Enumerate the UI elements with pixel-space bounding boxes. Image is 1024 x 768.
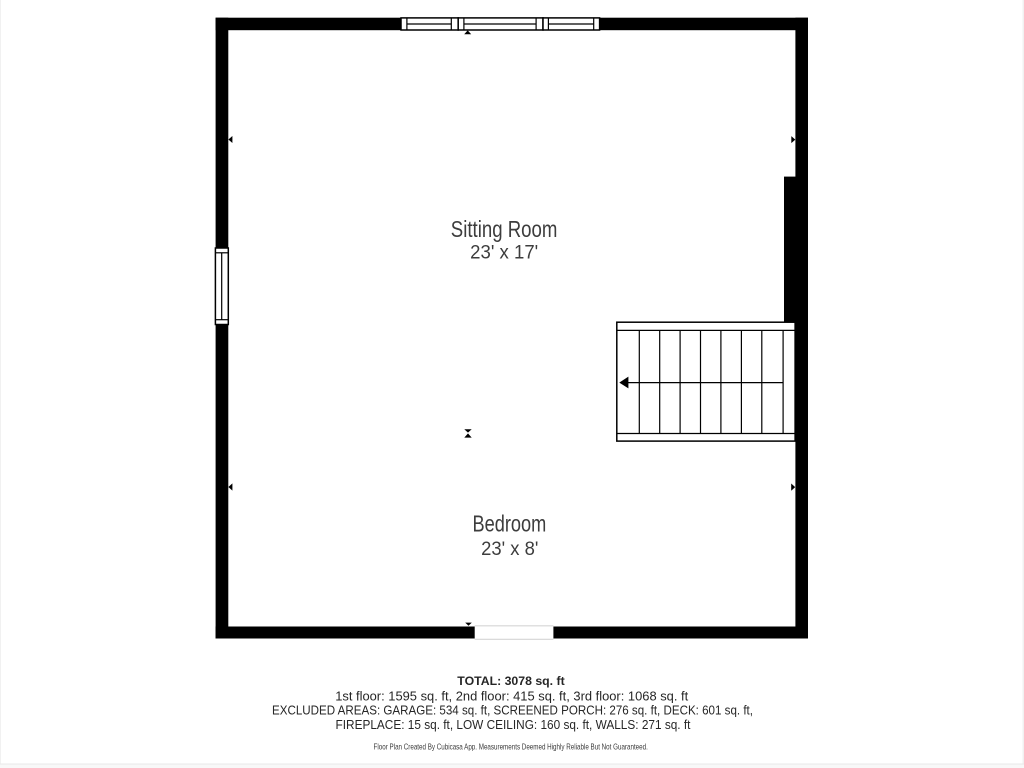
svg-text:1st floor: 1595 sq. ft, 2nd fl: 1st floor: 1595 sq. ft, 2nd floor: 415 s… <box>335 688 688 703</box>
svg-text:Sitting Room: Sitting Room <box>451 216 558 242</box>
svg-text:23' x 17': 23' x 17' <box>470 243 538 264</box>
svg-text:EXCLUDED AREAS: GARAGE: 534 sq: EXCLUDED AREAS: GARAGE: 534 sq. ft, SCRE… <box>272 703 753 718</box>
svg-text:Floor Plan Created By Cubicasa: Floor Plan Created By Cubicasa App. Meas… <box>374 743 648 752</box>
svg-text:TOTAL: 3078 sq. ft: TOTAL: 3078 sq. ft <box>457 674 564 688</box>
svg-text:Bedroom: Bedroom <box>473 511 547 537</box>
svg-text:FIREPLACE: 15 sq. ft, LOW CEIL: FIREPLACE: 15 sq. ft, LOW CEILING: 160 s… <box>336 717 691 732</box>
svg-text:23' x 8': 23' x 8' <box>481 539 538 560</box>
